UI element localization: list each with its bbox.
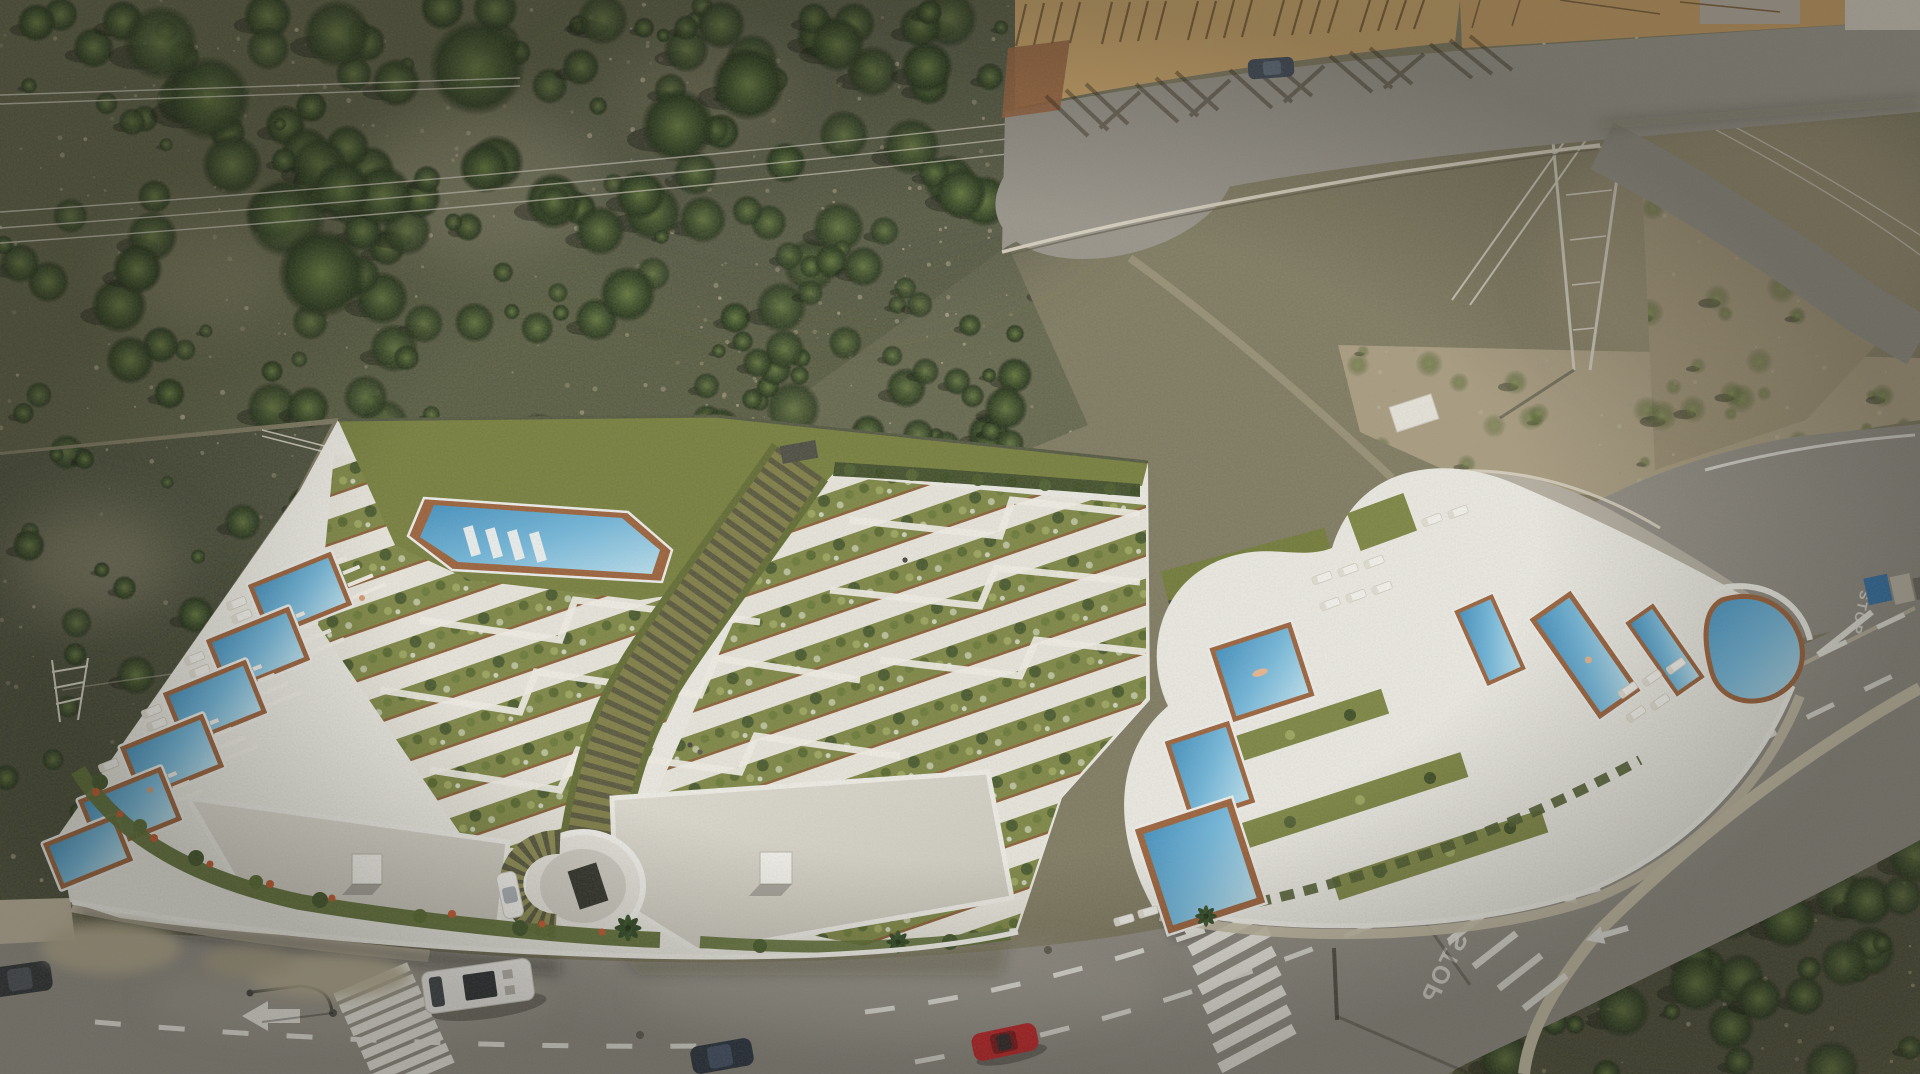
vignette: [0, 0, 1920, 1074]
aerial-photo-canvas: Aerial drone view of a terraced apartmen…: [0, 0, 1920, 1074]
aerial-photo: Aerial drone view of a terraced apartmen…: [0, 0, 1920, 1074]
